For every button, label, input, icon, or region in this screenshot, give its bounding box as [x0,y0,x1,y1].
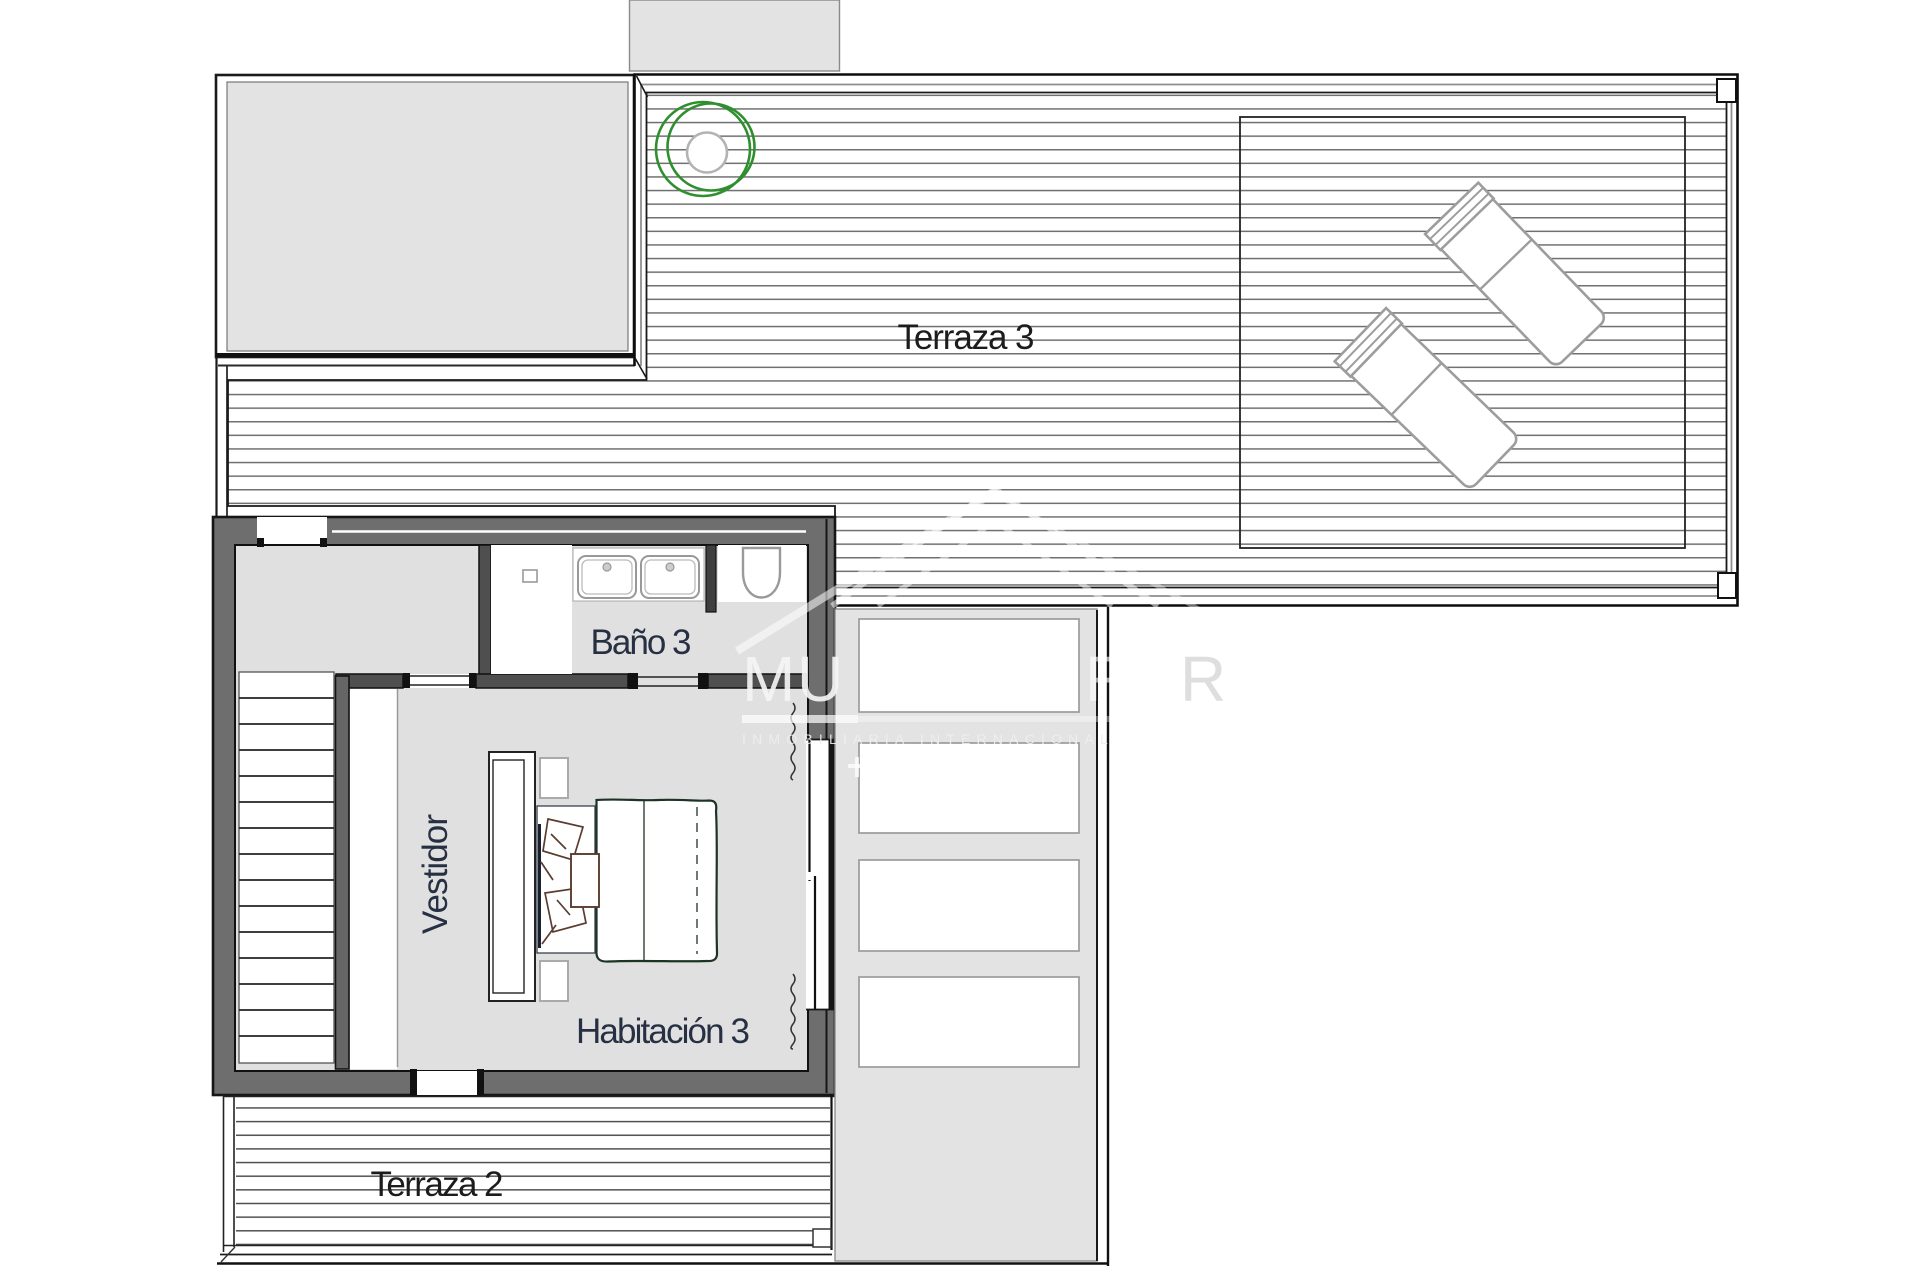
svg-text:Terraza 2: Terraza 2 [371,1165,504,1204]
svg-text:Habitación 3: Habitación 3 [576,1012,750,1051]
svg-text:Vestidor: Vestidor [416,814,455,934]
svg-text:M: M [742,643,795,715]
svg-text:Baño 3: Baño 3 [591,623,692,662]
svg-text:R: R [1085,643,1131,715]
svg-text:Terraza 3: Terraza 3 [898,318,1035,357]
svg-text:INMOBILIARIA INTERNACIONAL: INMOBILIARIA INTERNACIONAL [742,731,1114,747]
svg-text:U: U [797,643,843,715]
svg-text:R: R [1180,643,1226,715]
